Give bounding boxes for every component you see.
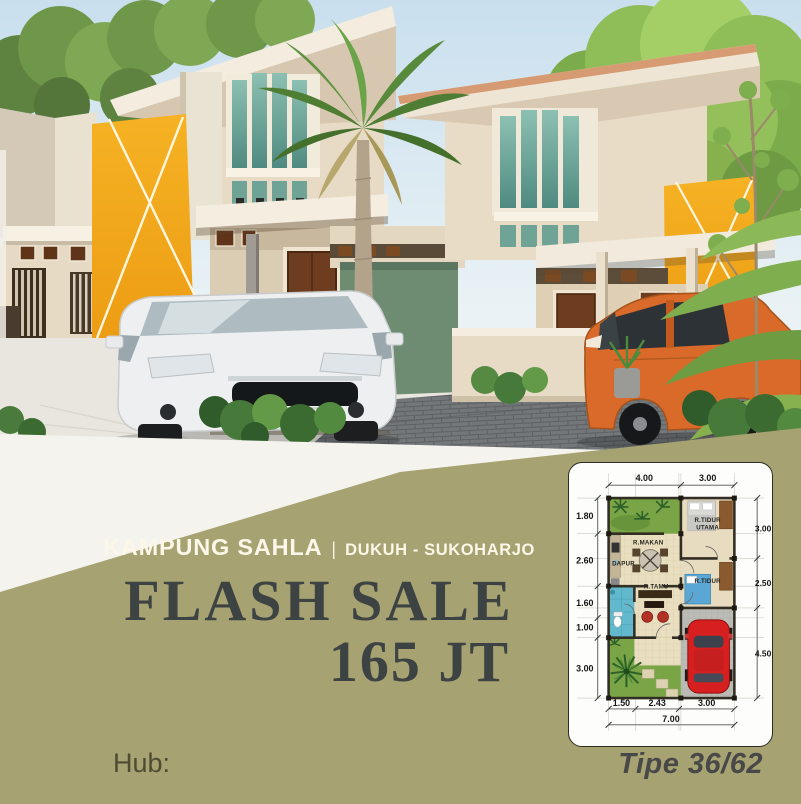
flyer: KAMPUNG SAHLA | DUKUH - SUKOHARJO FLASH … xyxy=(0,0,801,804)
dim-bottom-3: 3.00 xyxy=(698,698,715,708)
room-label-master-2: UTAMA xyxy=(696,525,719,532)
project-separator: | xyxy=(331,539,336,560)
room-label-living: R.TAMU xyxy=(644,584,669,591)
floorplan-card: 4.00 3.00 1.80 2.60 1.60 1.00 3.00 3.00 … xyxy=(568,462,773,747)
project-name: KAMPUNG SAHLA xyxy=(103,534,322,561)
project-location: DUKUH - SUKOHARJO xyxy=(345,541,535,560)
dim-left-2: 2.60 xyxy=(576,555,593,565)
dim-left-5: 3.00 xyxy=(576,663,593,673)
promo-block: KAMPUNG SAHLA | DUKUH - SUKOHARJO FLASH … xyxy=(118,534,520,689)
dim-top-1: 4.00 xyxy=(636,473,653,483)
room-label-dining: R.MAKAN xyxy=(633,540,664,547)
contact-label: Hub: xyxy=(113,748,170,779)
hero-photo xyxy=(0,0,801,455)
dim-left-4: 1.00 xyxy=(576,623,593,633)
dim-top-2: 3.00 xyxy=(699,473,716,483)
small-windows xyxy=(20,246,86,261)
red-car xyxy=(685,620,733,693)
room-label-kitchen: DAPUR xyxy=(612,560,635,567)
dim-right-3: 4.50 xyxy=(755,648,772,658)
dim-bottom-1: 1.50 xyxy=(613,698,630,708)
dim-total-width: 7.00 xyxy=(662,714,679,724)
flash-sale-headline: FLASH SALE xyxy=(118,573,520,628)
dim-left-1: 1.80 xyxy=(576,511,593,521)
dim-right-2: 2.50 xyxy=(755,578,772,588)
house-type-label: Tipe 36/62 xyxy=(618,748,763,781)
room-label-master-1: R.TIDUR xyxy=(695,517,722,524)
dim-bottom-2: 2.43 xyxy=(648,698,665,708)
dim-right-1: 3.00 xyxy=(755,524,772,534)
dim-left-3: 1.60 xyxy=(576,598,593,608)
room-label-bedroom: R.TIDUR xyxy=(695,578,722,585)
project-title-line: KAMPUNG SAHLA | DUKUH - SUKOHARJO xyxy=(118,534,520,561)
floorplan-drawing: 4.00 3.00 1.80 2.60 1.60 1.00 3.00 3.00 … xyxy=(569,463,772,746)
price-text: 165 JT xyxy=(118,634,520,689)
